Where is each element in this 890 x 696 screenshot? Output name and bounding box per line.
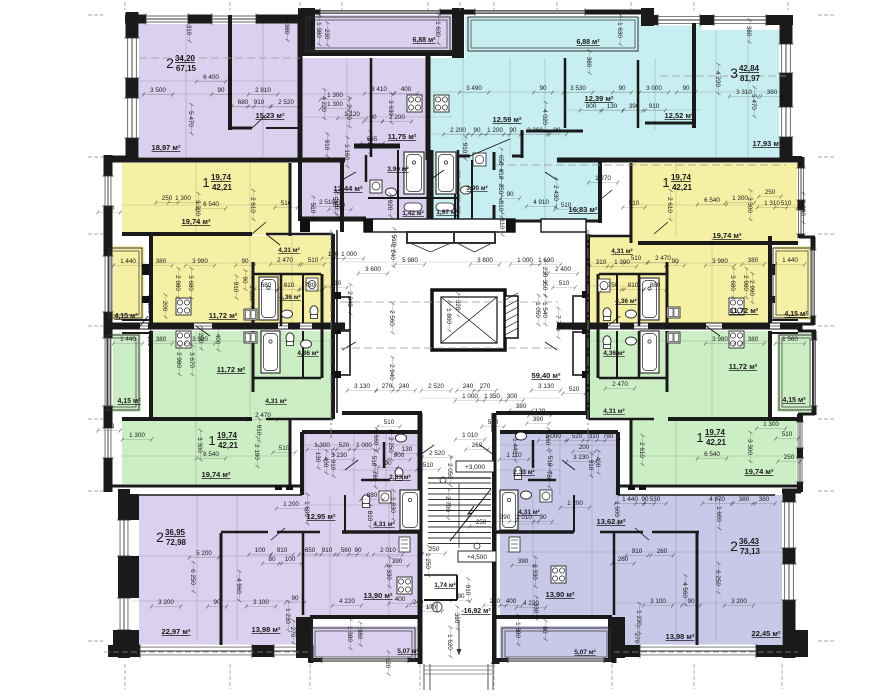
svg-text:1 440: 1 440 (622, 496, 638, 503)
svg-text:2 470: 2 470 (655, 255, 671, 262)
svg-text:260: 260 (657, 548, 668, 555)
svg-text:380: 380 (356, 629, 363, 640)
svg-text:240: 240 (463, 383, 474, 390)
svg-text:380: 380 (453, 613, 460, 624)
svg-text:2 810: 2 810 (255, 87, 271, 94)
svg-text:90: 90 (539, 514, 547, 521)
svg-text:1 310: 1 310 (764, 200, 780, 207)
svg-text:90: 90 (553, 127, 561, 134)
svg-text:90: 90 (509, 127, 517, 134)
svg-text:6 250: 6 250 (714, 570, 721, 586)
svg-text:810: 810 (284, 282, 295, 289)
svg-text:1 200: 1 200 (283, 501, 299, 508)
svg-text:12,39 м²: 12,39 м² (585, 94, 614, 103)
svg-text:240: 240 (490, 598, 501, 605)
svg-text:4,31 м²: 4,31 м² (373, 521, 395, 528)
svg-text:19,74: 19,74 (217, 431, 238, 440)
svg-text:3 300: 3 300 (746, 439, 753, 455)
svg-text:90: 90 (687, 598, 695, 605)
svg-text:5 200: 5 200 (196, 550, 212, 557)
svg-text:4,15 м²: 4,15 м² (114, 313, 138, 320)
svg-text:2 470: 2 470 (612, 381, 628, 388)
svg-text:1 380: 1 380 (315, 22, 322, 38)
svg-text:2 980: 2 980 (175, 352, 182, 368)
svg-text:3 230: 3 230 (331, 452, 347, 459)
svg-text:+4,500: +4,500 (467, 554, 487, 561)
svg-text:3 980: 3 980 (192, 336, 208, 343)
svg-text:120: 120 (384, 658, 391, 669)
svg-text:3 490: 3 490 (466, 85, 482, 92)
svg-text:910: 910 (587, 460, 594, 471)
svg-text:780: 780 (545, 471, 552, 482)
svg-text:5 980: 5 980 (402, 257, 418, 264)
svg-text:1 800: 1 800 (248, 285, 255, 301)
svg-text:90: 90 (213, 599, 221, 606)
svg-text:910: 910 (323, 140, 330, 151)
svg-text:1 620: 1 620 (446, 634, 453, 650)
svg-text:1 110: 1 110 (506, 452, 522, 459)
svg-text:5,07 м²: 5,07 м² (574, 649, 596, 656)
svg-text:3 300: 3 300 (746, 197, 753, 213)
svg-text:1,74 м²: 1,74 м² (434, 582, 456, 589)
svg-text:80: 80 (541, 626, 548, 634)
svg-text:13,98 м²: 13,98 м² (252, 625, 281, 634)
svg-text:34,20: 34,20 (175, 54, 196, 63)
svg-text:240: 240 (413, 599, 424, 606)
svg-text:11,72 м²: 11,72 м² (729, 362, 758, 371)
svg-text:42,21: 42,21 (212, 183, 233, 192)
svg-text:100: 100 (255, 547, 266, 554)
svg-text:270: 270 (633, 633, 640, 644)
svg-text:2 470: 2 470 (277, 257, 293, 264)
svg-text:3 330: 3 330 (531, 564, 538, 580)
svg-text:910: 910 (255, 425, 262, 436)
svg-text:1 440: 1 440 (782, 257, 798, 264)
svg-text:11,75 м²: 11,75 м² (388, 132, 417, 141)
svg-text:3 300: 3 300 (194, 200, 201, 216)
svg-text:380: 380 (745, 26, 752, 37)
svg-text:1 630: 1 630 (434, 21, 441, 37)
svg-text:1,97 м²: 1,97 м² (436, 209, 458, 216)
svg-text:4,15 м²: 4,15 м² (117, 398, 141, 405)
svg-text:3 130: 3 130 (354, 383, 370, 390)
svg-text:1 250: 1 250 (424, 553, 431, 569)
svg-text:250: 250 (162, 195, 173, 202)
svg-text:510: 510 (104, 205, 115, 212)
svg-text:6 540: 6 540 (203, 201, 219, 208)
svg-text:2 520: 2 520 (428, 383, 444, 390)
svg-text:400: 400 (594, 457, 601, 468)
svg-text:1 300: 1 300 (614, 259, 630, 266)
svg-text:350: 350 (541, 280, 548, 291)
svg-text:2 430: 2 430 (552, 185, 559, 201)
svg-text:1 540: 1 540 (541, 302, 548, 318)
svg-text:90: 90 (682, 85, 690, 92)
svg-text:2 010: 2 010 (516, 514, 532, 521)
svg-text:4,15 м²: 4,15 м² (782, 397, 806, 404)
svg-text:2 980: 2 980 (174, 275, 181, 291)
svg-text:3 630: 3 630 (387, 100, 394, 116)
svg-text:1 000: 1 000 (356, 442, 372, 449)
svg-text:19,74: 19,74 (671, 173, 692, 182)
svg-text:390: 390 (518, 558, 529, 565)
svg-text:270: 270 (480, 383, 491, 390)
svg-text:510: 510 (279, 445, 290, 452)
svg-text:90: 90 (457, 593, 465, 600)
svg-text:3 100: 3 100 (650, 598, 666, 605)
svg-text:90: 90 (369, 114, 377, 121)
svg-text:250: 250 (765, 189, 776, 196)
svg-text:1 690: 1 690 (538, 257, 554, 264)
svg-text:4 220: 4 220 (714, 71, 721, 87)
svg-text:510: 510 (782, 431, 793, 438)
svg-text:2,33 м²: 2,33 м² (389, 474, 411, 481)
svg-text:12,52 м²: 12,52 м² (665, 111, 694, 120)
svg-text:2 190: 2 190 (253, 444, 260, 460)
svg-text:2: 2 (730, 538, 738, 554)
svg-text:90: 90 (618, 85, 626, 92)
svg-text:3 800: 3 800 (477, 257, 493, 264)
svg-text:4,15 м²: 4,15 м² (784, 311, 808, 318)
svg-text:1,42 м²: 1,42 м² (402, 210, 424, 217)
svg-text:1 300: 1 300 (129, 432, 145, 439)
svg-text:380: 380 (748, 257, 759, 264)
svg-text:380: 380 (283, 24, 290, 35)
svg-text:11,72 м²: 11,72 м² (209, 311, 238, 320)
svg-text:2: 2 (166, 55, 174, 71)
svg-text:1 230: 1 230 (635, 610, 642, 626)
svg-text:200: 200 (579, 444, 590, 451)
svg-text:90: 90 (671, 258, 679, 265)
svg-text:350: 350 (497, 184, 504, 195)
svg-text:90: 90 (217, 87, 225, 94)
svg-text:2 260: 2 260 (527, 127, 543, 134)
svg-text:1 200: 1 200 (567, 500, 583, 507)
svg-text:1 160: 1 160 (343, 144, 350, 160)
svg-text:2 560: 2 560 (388, 310, 395, 326)
svg-text:6 540: 6 540 (704, 451, 720, 458)
svg-text:2 610: 2 610 (638, 442, 645, 458)
svg-text:1 300: 1 300 (175, 195, 191, 202)
svg-text:1: 1 (696, 430, 703, 445)
svg-text:130: 130 (314, 452, 321, 463)
svg-text:2 520: 2 520 (429, 450, 445, 457)
svg-text:880: 880 (367, 492, 378, 499)
svg-text:3 500: 3 500 (150, 87, 166, 94)
svg-text:73,13: 73,13 (740, 547, 761, 556)
svg-text:390: 390 (392, 558, 403, 565)
svg-text:190: 190 (146, 303, 153, 314)
svg-text:4 870: 4 870 (709, 496, 725, 503)
svg-text:510: 510 (629, 200, 640, 207)
svg-text:380: 380 (156, 258, 167, 265)
svg-text:36,43: 36,43 (739, 537, 760, 546)
svg-text:380: 380 (739, 496, 750, 503)
svg-text:36,95: 36,95 (165, 528, 186, 537)
svg-text:90: 90 (241, 258, 249, 265)
svg-text:5 470: 5 470 (187, 111, 194, 127)
svg-text:510: 510 (308, 257, 319, 264)
svg-text:910: 910 (232, 282, 239, 293)
svg-text:130: 130 (607, 103, 618, 110)
svg-text:1: 1 (202, 175, 209, 190)
svg-text:400: 400 (401, 86, 412, 93)
svg-text:3 130: 3 130 (538, 383, 554, 390)
svg-text:750: 750 (608, 282, 619, 289)
svg-text:3 410: 3 410 (371, 86, 387, 93)
svg-text:910: 910 (632, 548, 643, 555)
svg-text:510: 510 (781, 200, 792, 207)
svg-text:510: 510 (370, 456, 377, 467)
svg-text:3 000: 3 000 (646, 85, 662, 92)
svg-text:190: 190 (146, 336, 153, 347)
svg-text:19,74: 19,74 (211, 173, 232, 182)
svg-text:1 300: 1 300 (327, 101, 343, 108)
svg-text:790: 790 (603, 433, 614, 440)
svg-text:4 220: 4 220 (320, 96, 327, 112)
svg-text:510: 510 (104, 423, 115, 430)
svg-text:2 610: 2 610 (249, 197, 256, 213)
svg-text:1 010: 1 010 (462, 432, 478, 439)
svg-text:2 050: 2 050 (446, 463, 453, 479)
svg-text:510: 510 (631, 255, 642, 262)
svg-text:310: 310 (589, 433, 600, 440)
svg-text:510: 510 (559, 280, 570, 287)
svg-text:4,36 м²: 4,36 м² (279, 294, 301, 301)
svg-text:2 610: 2 610 (666, 197, 673, 213)
svg-text:4,31 м²: 4,31 м² (265, 398, 287, 405)
svg-text:2 470: 2 470 (255, 412, 271, 419)
svg-text:3 330: 3 330 (385, 564, 392, 580)
svg-text:3 530: 3 530 (570, 85, 586, 92)
svg-text:780: 780 (305, 282, 316, 289)
svg-text:90: 90 (291, 595, 299, 602)
svg-text:1 270: 1 270 (595, 175, 611, 182)
svg-text:510: 510 (423, 462, 434, 469)
svg-text:13,62 м²: 13,62 м² (597, 517, 626, 526)
svg-text:100: 100 (285, 556, 296, 563)
svg-text:90: 90 (506, 191, 514, 198)
svg-text:4,31 м²: 4,31 м² (278, 247, 300, 254)
svg-text:390: 390 (533, 416, 544, 423)
svg-text:19,74 м²: 19,74 м² (745, 467, 774, 476)
svg-text:3,90 м²: 3,90 м² (466, 185, 488, 192)
svg-text:810: 810 (366, 511, 373, 522)
svg-text:680: 680 (238, 99, 249, 106)
svg-text:3 600: 3 600 (365, 266, 381, 273)
svg-text:1 600: 1 600 (715, 506, 722, 522)
svg-text:4,36 м²: 4,36 м² (615, 298, 637, 305)
svg-text:260: 260 (472, 442, 483, 449)
svg-text:400: 400 (395, 596, 406, 603)
svg-text:300: 300 (507, 393, 518, 400)
svg-text:3 310: 3 310 (736, 89, 752, 96)
svg-text:510: 510 (561, 202, 572, 209)
svg-text:3,90 м²: 3,90 м² (387, 166, 409, 173)
svg-text:3 300: 3 300 (196, 437, 203, 453)
svg-text:380: 380 (748, 336, 759, 343)
svg-text:1 050: 1 050 (534, 302, 541, 318)
svg-text:120: 120 (535, 408, 546, 415)
svg-text:2 700: 2 700 (444, 496, 451, 512)
svg-text:4 560: 4 560 (681, 582, 688, 598)
svg-text:4,36 м²: 4,36 м² (297, 350, 319, 357)
svg-text:2 940: 2 940 (388, 364, 395, 380)
svg-text:400: 400 (214, 334, 221, 345)
svg-text:2 240: 2 240 (346, 291, 353, 307)
svg-text:310: 310 (185, 25, 192, 36)
svg-text:650: 650 (305, 547, 316, 554)
svg-text:2 010: 2 010 (380, 547, 396, 554)
svg-text:67,15: 67,15 (176, 64, 197, 73)
svg-text:42,21: 42,21 (672, 183, 693, 192)
svg-text:1: 1 (208, 433, 215, 448)
svg-text:42,21: 42,21 (218, 441, 239, 450)
svg-text:810: 810 (497, 201, 504, 212)
svg-text:380: 380 (516, 403, 527, 410)
svg-text:910: 910 (461, 143, 468, 154)
svg-text:6 250: 6 250 (189, 569, 196, 585)
svg-text:13,90 м²: 13,90 м² (546, 590, 575, 599)
svg-text:1 630: 1 630 (616, 22, 623, 38)
svg-text:90: 90 (354, 547, 362, 554)
svg-text:13,98 м²: 13,98 м² (666, 632, 695, 641)
svg-text:1 000: 1 000 (517, 257, 533, 264)
svg-text:1 350: 1 350 (484, 393, 500, 400)
svg-text:1 830: 1 830 (389, 497, 396, 513)
svg-text:330: 330 (532, 603, 539, 614)
svg-text:510: 510 (281, 200, 292, 207)
svg-text:230: 230 (323, 29, 330, 40)
svg-text:4 220: 4 220 (339, 598, 355, 605)
svg-text:-16,92 м²: -16,92 м² (461, 608, 491, 615)
svg-text:380: 380 (156, 336, 167, 343)
svg-text:170: 170 (426, 604, 437, 611)
svg-text:530: 530 (650, 496, 661, 503)
svg-text:250: 250 (784, 454, 795, 461)
svg-text:660: 660 (544, 435, 551, 446)
svg-text:3 680: 3 680 (729, 275, 736, 291)
svg-text:510: 510 (546, 456, 553, 467)
svg-text:510: 510 (569, 386, 580, 393)
svg-text:910: 910 (649, 103, 660, 110)
svg-text:900: 900 (394, 452, 405, 459)
svg-text:400: 400 (506, 598, 517, 605)
svg-text:1 200: 1 200 (487, 127, 503, 134)
svg-text:810: 810 (628, 282, 639, 289)
svg-text:1 230: 1 230 (284, 608, 291, 624)
svg-text:15,23 м²: 15,23 м² (256, 111, 285, 120)
svg-text:13,90 м²: 13,90 м² (364, 591, 393, 600)
svg-text:270: 270 (289, 627, 296, 638)
svg-text:81,97: 81,97 (740, 74, 761, 83)
svg-text:3 680: 3 680 (187, 275, 194, 291)
svg-text:400: 400 (322, 457, 329, 468)
svg-text:3 200: 3 200 (731, 598, 747, 605)
svg-text:320: 320 (454, 300, 461, 311)
svg-text:380: 380 (585, 57, 592, 68)
svg-text:42,84: 42,84 (739, 64, 760, 73)
svg-text:4 910: 4 910 (533, 199, 549, 206)
svg-text:19,74 м²: 19,74 м² (202, 470, 231, 479)
svg-text:230: 230 (541, 267, 548, 278)
svg-text:380: 380 (767, 89, 778, 96)
svg-text:510: 510 (331, 280, 342, 287)
svg-text:510: 510 (384, 419, 395, 426)
svg-text:1 560: 1 560 (782, 336, 798, 343)
svg-text:6 400: 6 400 (203, 74, 219, 81)
svg-text:19,74 м²: 19,74 м² (182, 217, 211, 226)
svg-text:2,33 м²: 2,33 м² (513, 469, 535, 476)
svg-text:80: 80 (268, 556, 276, 563)
svg-text:3 200: 3 200 (158, 599, 174, 606)
svg-text:240: 240 (399, 383, 410, 390)
svg-text:2: 2 (156, 529, 164, 545)
svg-text:2 990: 2 990 (748, 280, 755, 296)
svg-text:4,36 м²: 4,36 м² (603, 350, 625, 357)
svg-text:1: 1 (662, 175, 669, 190)
svg-text:110: 110 (498, 219, 505, 230)
svg-text:3 980: 3 980 (712, 258, 728, 265)
svg-text:510: 510 (309, 203, 316, 214)
svg-text:2 200: 2 200 (450, 127, 466, 134)
svg-text:1 600: 1 600 (613, 501, 620, 517)
svg-text:610: 610 (497, 169, 504, 180)
svg-text:5,07 м²: 5,07 м² (397, 648, 419, 655)
svg-text:19,74: 19,74 (705, 428, 726, 437)
svg-text:2 250: 2 250 (387, 437, 394, 453)
svg-text:250: 250 (476, 519, 487, 526)
svg-text:2 720: 2 720 (345, 104, 352, 120)
svg-text:270: 270 (382, 383, 393, 390)
svg-text:90: 90 (384, 460, 392, 467)
svg-text:310: 310 (596, 259, 607, 266)
svg-text:12,59 м²: 12,59 м² (493, 115, 522, 124)
svg-text:2 400: 2 400 (555, 266, 571, 273)
svg-text:6 540: 6 540 (704, 197, 720, 204)
svg-text:59,40 м²: 59,40 м² (532, 371, 561, 380)
svg-text:90: 90 (641, 496, 649, 503)
svg-text:560: 560 (341, 547, 352, 554)
svg-text:6 540: 6 540 (203, 451, 219, 458)
svg-text:4,31 м²: 4,31 м² (603, 408, 625, 415)
svg-text:520: 520 (572, 433, 583, 440)
svg-text:910: 910 (329, 460, 336, 471)
svg-text:1 000: 1 000 (341, 251, 357, 258)
svg-text:1 300: 1 300 (314, 442, 330, 449)
svg-text:900: 900 (586, 103, 597, 110)
svg-text:11,72 м²: 11,72 м² (217, 365, 246, 374)
svg-text:6,88 м²: 6,88 м² (412, 37, 436, 44)
svg-text:1 440: 1 440 (120, 258, 136, 265)
svg-text:510: 510 (488, 419, 499, 426)
svg-text:880: 880 (650, 282, 661, 289)
svg-text:2 240: 2 240 (389, 244, 396, 260)
svg-text:2 980: 2 980 (742, 275, 749, 291)
svg-text:910: 910 (277, 547, 288, 554)
svg-text:1 800: 1 800 (445, 308, 452, 324)
svg-text:18,97 м²: 18,97 м² (152, 143, 181, 152)
svg-text:660: 660 (372, 435, 379, 446)
svg-text:22,45 м²: 22,45 м² (752, 629, 781, 638)
svg-text:130: 130 (402, 446, 413, 453)
svg-text:780: 780 (371, 471, 378, 482)
svg-text:920: 920 (386, 200, 393, 211)
svg-text:3 980: 3 980 (192, 258, 208, 265)
svg-text:3 980: 3 980 (712, 336, 728, 343)
svg-text:17,93 м²: 17,93 м² (753, 139, 782, 148)
svg-text:680: 680 (261, 282, 272, 289)
